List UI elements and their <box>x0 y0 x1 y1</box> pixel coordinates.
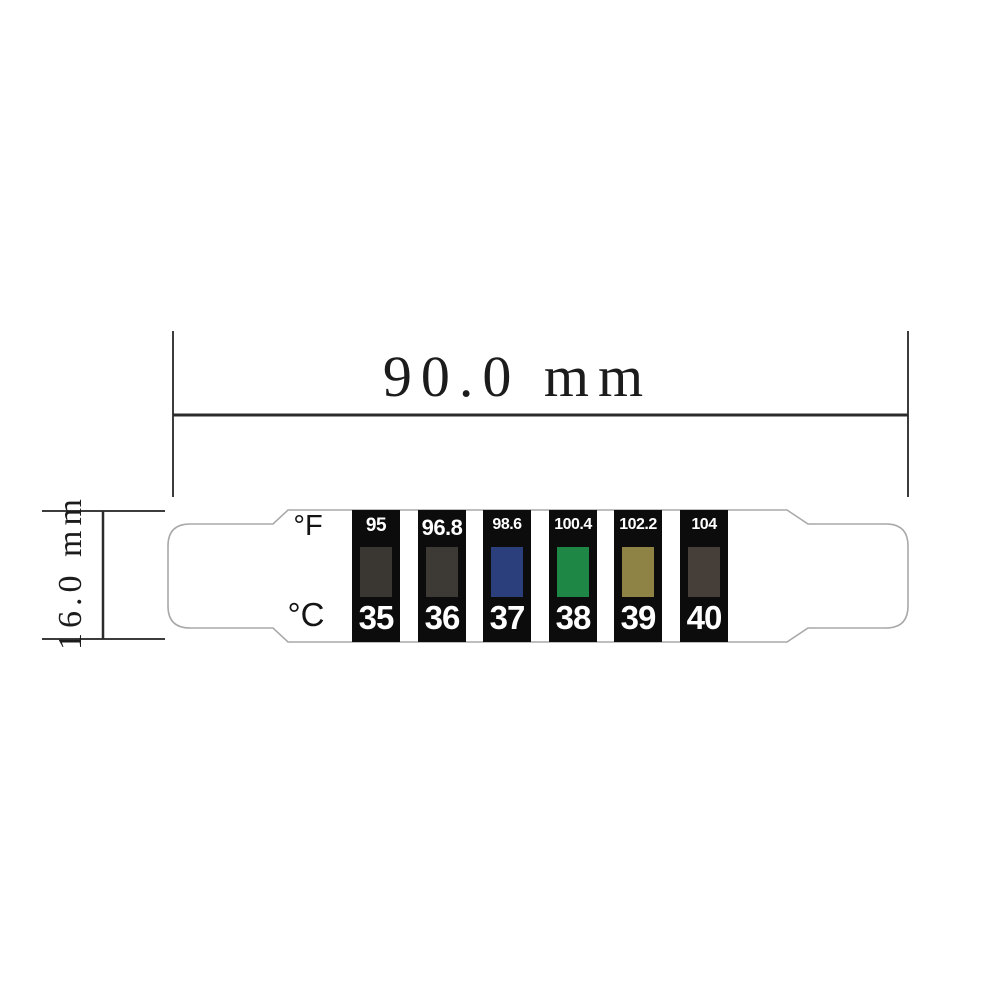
celsius-value: 40 <box>680 601 728 634</box>
fahrenheit-value: 96.8 <box>418 516 466 540</box>
fahrenheit-value: 104 <box>680 516 728 534</box>
fahrenheit-value: 102.2 <box>614 516 662 534</box>
height-dimension-label: 16.0 mm <box>49 500 93 650</box>
temperature-segment-38: 100.4 38 <box>549 510 597 642</box>
technical-drawing-canvas: 90.0 mm 16.0 mm °F °C 95 35 96.8 36 98.6… <box>0 0 1000 1000</box>
width-dimension-label: 90.0 mm <box>150 347 885 408</box>
temperature-indicator-swatch <box>557 547 589 597</box>
celsius-value: 37 <box>483 601 531 634</box>
temperature-segment-40: 104 40 <box>680 510 728 642</box>
temperature-segment-36: 96.8 36 <box>418 510 466 642</box>
temperature-indicator-swatch <box>622 547 654 597</box>
temperature-indicator-swatch <box>360 547 392 597</box>
temperature-indicator-swatch <box>426 547 458 597</box>
celsius-value: 36 <box>418 601 466 634</box>
fahrenheit-value: 100.4 <box>549 516 597 534</box>
temperature-segment-39: 102.2 39 <box>614 510 662 642</box>
strip-outline <box>168 510 908 642</box>
temperature-indicator-swatch <box>688 547 720 597</box>
temperature-indicator-swatch <box>491 547 523 597</box>
celsius-unit-label: °C <box>283 598 329 631</box>
drawing-linework <box>0 0 1000 1000</box>
fahrenheit-value: 95 <box>352 516 400 537</box>
celsius-value: 35 <box>352 601 400 634</box>
celsius-value: 38 <box>549 601 597 634</box>
celsius-value: 39 <box>614 601 662 634</box>
fahrenheit-unit-label: °F <box>288 512 328 541</box>
fahrenheit-value: 98.6 <box>483 516 531 534</box>
temperature-segment-35: 95 35 <box>352 510 400 642</box>
temperature-segment-37: 98.6 37 <box>483 510 531 642</box>
